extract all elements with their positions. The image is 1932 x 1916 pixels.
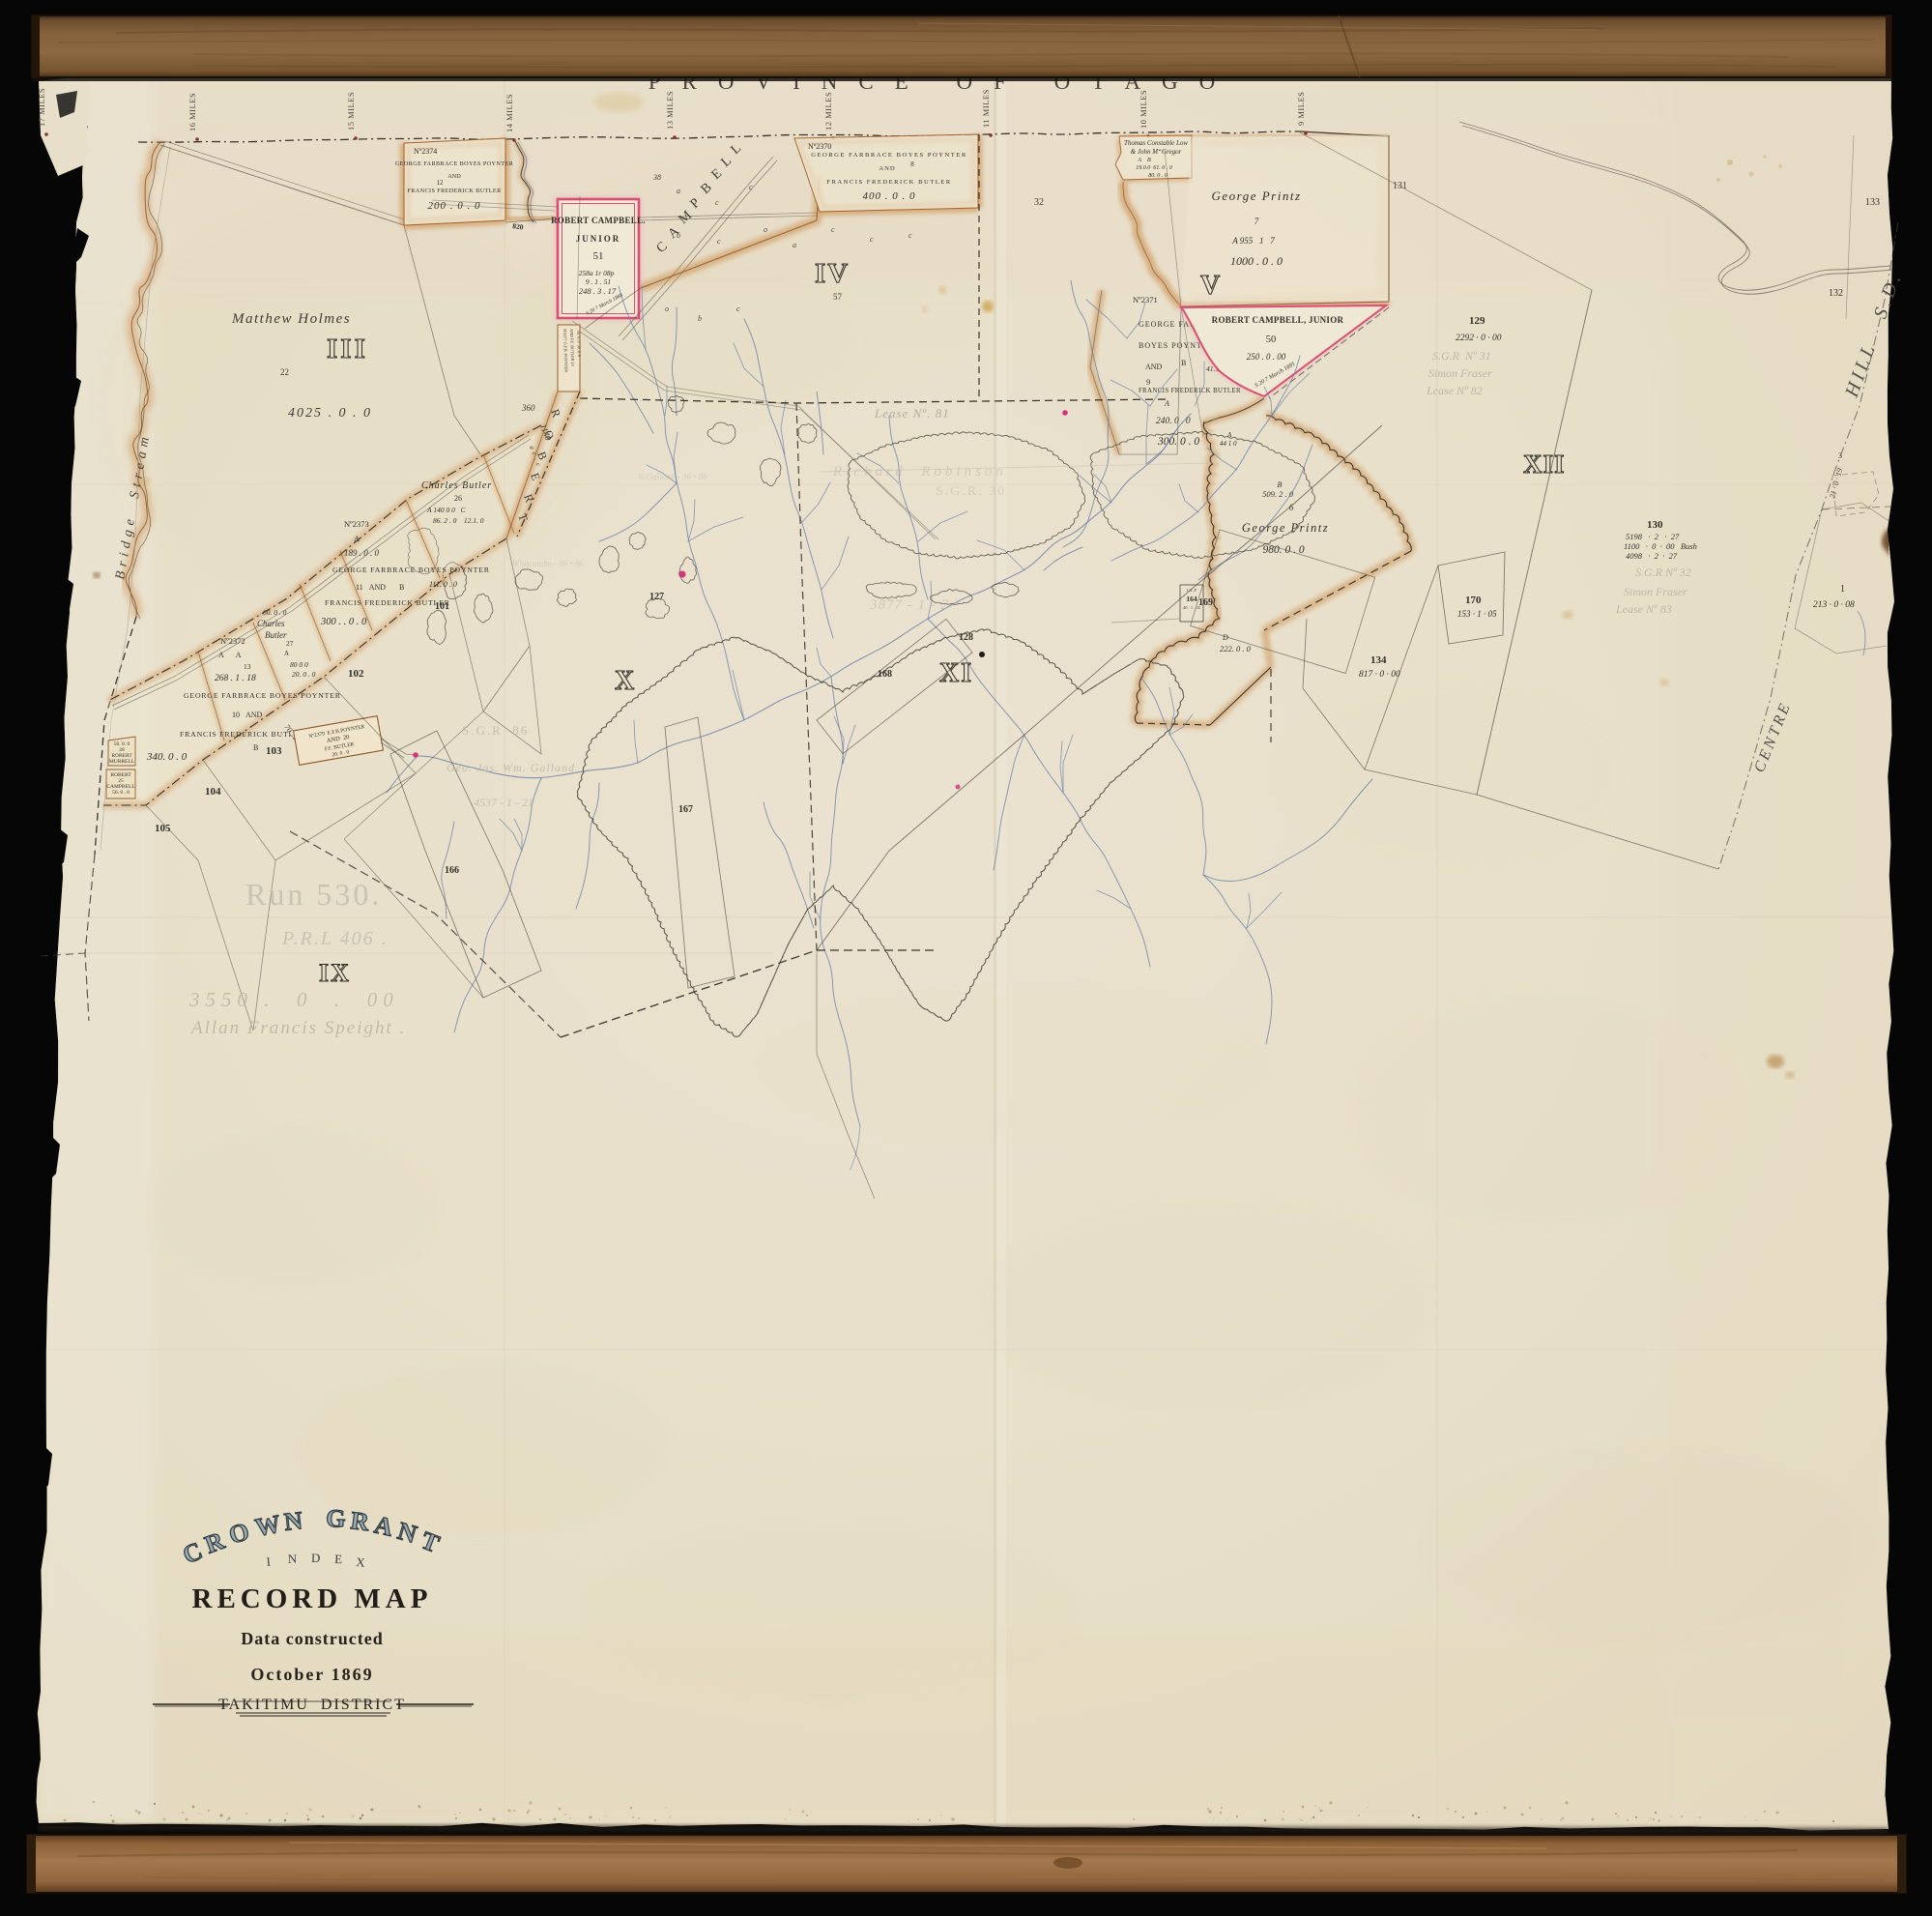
- svg-text:167: 167: [678, 804, 693, 815]
- svg-text:Nº2372: Nº2372: [220, 636, 245, 646]
- svg-text:S.G.R. 30: S.G.R. 30: [936, 484, 1006, 499]
- svg-text:103: 103: [266, 745, 282, 757]
- svg-text:80. 0 . 0: 80. 0 . 0: [1148, 173, 1168, 179]
- svg-text:Lease Nº 83: Lease Nº 83: [1615, 602, 1672, 616]
- svg-text:c: c: [908, 231, 912, 240]
- svg-text:c: c: [736, 305, 740, 313]
- svg-text:250 . 0 . 00: 250 . 0 . 00: [1247, 352, 1286, 362]
- svg-text:134: 134: [1370, 654, 1387, 666]
- svg-text:B: B: [1278, 480, 1283, 489]
- svg-text:R: R: [349, 1506, 370, 1536]
- svg-text:360: 360: [521, 403, 535, 413]
- svg-text:10 MILES: 10 MILES: [1139, 90, 1148, 129]
- svg-text:3550 . 0 . 00: 3550 . 0 . 00: [188, 988, 399, 1011]
- svg-text:D: D: [311, 1551, 320, 1565]
- svg-text:400 . 0 . 0: 400 . 0 . 0: [863, 190, 916, 202]
- svg-text:Run 530.: Run 530.: [245, 877, 382, 912]
- svg-text:8: 8: [910, 160, 914, 168]
- svg-text:c: c: [870, 235, 874, 244]
- svg-text:N: N: [287, 1552, 298, 1566]
- svg-text:16 MILES: 16 MILES: [187, 93, 197, 131]
- svg-text:15 MILES: 15 MILES: [346, 92, 356, 131]
- svg-text:MURRELL: MURRELL: [109, 759, 135, 765]
- svg-text:13 MILES: 13 MILES: [665, 91, 675, 130]
- svg-text:A: A: [1164, 399, 1169, 408]
- svg-text:X: X: [615, 666, 634, 696]
- svg-text:60. 0 . 0: 60. 0 . 0: [263, 608, 287, 617]
- svg-text:RECORD MAP: RECORD MAP: [192, 1583, 433, 1614]
- svg-text:57: 57: [833, 292, 843, 302]
- svg-text:o: o: [677, 231, 680, 240]
- svg-text:V: V: [1200, 271, 1221, 301]
- svg-text:1100 · 0 · 00 Bush: 1100 · 0 · 00 Bush: [1624, 541, 1697, 551]
- svg-text:20. 0 . 0: 20. 0 . 0: [292, 670, 316, 679]
- svg-text:W.Galland - 36 • 86: W.Galland - 36 • 86: [638, 472, 707, 481]
- svg-text:300 . . 0 . 0: 300 . . 0 . 0: [320, 617, 367, 627]
- svg-text:c: c: [717, 237, 721, 246]
- svg-text:44 1 0: 44 1 0: [1220, 440, 1237, 448]
- svg-text:JUNIOR: JUNIOR: [576, 234, 621, 244]
- svg-text:G: G: [326, 1504, 346, 1533]
- svg-text:A A: A A: [218, 651, 242, 659]
- svg-text:102: 102: [348, 668, 364, 680]
- svg-text:133: 133: [1865, 197, 1880, 208]
- svg-text:300. 0 . 0: 300. 0 . 0: [1157, 436, 1199, 448]
- svg-text:340. 0 . 0: 340. 0 . 0: [146, 751, 187, 763]
- svg-text:12 MILES: 12 MILES: [823, 92, 833, 131]
- svg-text:170: 170: [1465, 595, 1482, 606]
- svg-text:7: 7: [1254, 217, 1259, 226]
- svg-text:IX: IX: [319, 959, 351, 987]
- svg-text:AND: AND: [447, 173, 461, 180]
- svg-text:W: W: [253, 1509, 283, 1541]
- svg-text:S.G.R Nº 32: S.G.R Nº 32: [1635, 566, 1691, 579]
- svg-text:P.R.L 406 .: P.R.L 406 .: [281, 928, 389, 949]
- svg-text:b: b: [698, 314, 702, 323]
- svg-text:Nº2370: Nº2370: [808, 142, 831, 151]
- svg-text:50: 50: [1266, 334, 1277, 345]
- svg-text:213 · 0 · 08: 213 · 0 · 08: [1813, 600, 1855, 610]
- svg-text:A: A: [284, 650, 289, 657]
- svg-text:A B: A B: [1137, 158, 1151, 163]
- svg-text:1000 . 0 . 0: 1000 . 0 . 0: [1230, 254, 1283, 268]
- svg-text:Lease Nº 82: Lease Nº 82: [1426, 384, 1483, 397]
- svg-text:132: 132: [1829, 288, 1843, 299]
- svg-text:50. 0. 0 30. 0. 0: 50. 0. 0 30. 0. 0: [576, 331, 582, 357]
- svg-text:Lease Nº. 81: Lease Nº. 81: [874, 406, 950, 421]
- svg-text:FRANCIS FREDERICK BUTLER: FRANCIS FREDERICK BUTLER: [1139, 388, 1241, 394]
- svg-text:GEORGE FARBRACE BOYES POYNT: GEORGE FARBRACE BOYES POYNTER: [811, 152, 967, 159]
- svg-text:XI: XI: [939, 658, 973, 688]
- svg-text:A 955 1 7: A 955 1 7: [1231, 236, 1275, 246]
- svg-text:240. 0 . 0: 240. 0 . 0: [1156, 417, 1191, 426]
- svg-text:164: 164: [1186, 595, 1197, 603]
- svg-text:B: B: [253, 743, 258, 752]
- svg-text:258a 1r 08p: 258a 1r 08p: [579, 269, 615, 277]
- svg-text:51: 51: [593, 250, 604, 262]
- svg-text:FRANCIS FREDERICK BUTLER: FRANCIS FREDERICK BUTLER: [407, 188, 502, 194]
- svg-text:Whitcombe - 36 • 86: Whitcombe - 36 • 86: [512, 559, 584, 568]
- svg-text:GEORGE FARBRACE BOYES POYNTER: GEORGE FARBRACE BOYES POYNTER: [395, 160, 514, 167]
- svg-text:5198 · 2 · 27: 5198 · 2 · 27: [1626, 532, 1680, 541]
- svg-text:22: 22: [280, 367, 289, 377]
- svg-text:189 . 0 . 0: 189 . 0 . 0: [344, 548, 380, 558]
- svg-text:XII: XII: [1523, 450, 1566, 479]
- svg-text:S.G.R Nº 31: S.G.R Nº 31: [1432, 349, 1491, 363]
- svg-text:12: 12: [437, 179, 445, 187]
- svg-text:Charles: Charles: [257, 619, 285, 628]
- svg-text:A: A: [354, 534, 360, 543]
- svg-text:o: o: [665, 305, 669, 313]
- svg-text:166: 166: [445, 865, 459, 876]
- svg-text:A 140 0 0 C: A 140 0 0 C: [426, 506, 466, 514]
- svg-text:9: 9: [1146, 377, 1150, 387]
- svg-text:248 . 3 . 17: 248 . 3 . 17: [579, 286, 617, 296]
- svg-text:4025 . 0 . 0: 4025 . 0 . 0: [288, 406, 372, 421]
- svg-text:AND: AND: [1145, 363, 1163, 371]
- svg-text:E: E: [334, 1552, 343, 1566]
- svg-text:N: N: [283, 1506, 304, 1536]
- svg-text:3: 3: [1838, 451, 1842, 460]
- svg-text:S.G.R 86: S.G.R 86: [462, 723, 529, 738]
- svg-text:c: c: [749, 183, 753, 191]
- svg-text:c: c: [715, 198, 719, 207]
- svg-text:IV: IV: [815, 258, 850, 289]
- svg-text:129: 129: [1469, 315, 1485, 327]
- svg-text:817 · 0 · 00: 817 · 0 · 00: [1359, 670, 1400, 680]
- svg-text:October 1869: October 1869: [250, 1665, 373, 1684]
- svg-text:105: 105: [155, 823, 171, 834]
- svg-text:Simon Fraser: Simon Fraser: [1428, 366, 1492, 380]
- svg-text:Allan Francis Speight .: Allan Francis Speight .: [189, 1018, 406, 1038]
- svg-text:Richard Robinson: Richard Robinson: [832, 464, 1007, 479]
- svg-text:4098 · 2 · 27: 4098 · 2 · 27: [1626, 551, 1678, 561]
- svg-text:128: 128: [959, 632, 973, 643]
- svg-text:127: 127: [649, 592, 664, 602]
- svg-text:2292 · 0 · 00: 2292 · 0 · 00: [1456, 334, 1502, 343]
- svg-text:27: 27: [286, 639, 294, 648]
- svg-text:268 . 1 . 18: 268 . 1 . 18: [215, 674, 256, 683]
- svg-text:3877 - 1 - 2: 3877 - 1 - 2: [869, 597, 949, 613]
- svg-text:ROBERT CAMPBELL, JUNIOR: ROBERT CAMPBELL, JUNIOR: [1212, 315, 1344, 325]
- svg-text:104: 104: [205, 786, 221, 798]
- svg-text:a: a: [677, 187, 680, 195]
- svg-text:38: 38: [652, 173, 661, 182]
- svg-text:9 MILES: 9 MILES: [1296, 92, 1306, 126]
- svg-text:AND: AND: [879, 165, 895, 172]
- svg-text:Butler: Butler: [265, 630, 287, 640]
- svg-text:GEORGE FARBRACE BOYES POYNTER: GEORGE FARBRACE BOYES POYNTER: [184, 691, 341, 700]
- svg-text:GEORGE FARBRACE BOYES POYNTER: GEORGE FARBRACE BOYES POYNTER: [332, 566, 490, 574]
- svg-text:& John M“Gregor: & John M“Gregor: [1131, 148, 1182, 156]
- svg-text:c: c: [831, 225, 835, 234]
- svg-text:Charles Butler: Charles Butler: [421, 480, 492, 491]
- svg-text:FRANCIS FREDERICK BUTLER: FRANCIS FREDERICK BUTLER: [826, 179, 951, 186]
- svg-text:10 AND: 10 AND: [232, 711, 263, 719]
- svg-text:Data constructed: Data constructed: [241, 1629, 383, 1648]
- svg-text:14 MILES: 14 MILES: [505, 94, 514, 132]
- svg-text:130: 130: [1647, 519, 1663, 531]
- svg-text:169: 169: [1198, 597, 1213, 608]
- svg-text:4537 - 1 - 21: 4537 - 1 - 21: [474, 796, 533, 809]
- svg-text:FRANCIS FREDERICK BUTLER: FRANCIS FREDERICK BUTLER: [325, 598, 450, 607]
- svg-text:9 . 1 . 51: 9 . 1 . 51: [586, 277, 611, 286]
- svg-text:13: 13: [244, 662, 251, 671]
- svg-text:26: 26: [454, 494, 462, 503]
- svg-text:222. 0 . 0: 222. 0 . 0: [1220, 644, 1252, 653]
- svg-text:11 MILES: 11 MILES: [981, 89, 991, 128]
- svg-text:86. 2 . 0 12.1. 0: 86. 2 . 0 12.1. 0: [433, 516, 484, 525]
- svg-text:Nº2374: Nº2374: [414, 147, 437, 156]
- svg-text:101: 101: [435, 601, 449, 612]
- svg-text:TAKITIMU DISTRICT: TAKITIMU DISTRICT: [218, 1697, 406, 1713]
- svg-text:820: 820: [512, 221, 525, 232]
- svg-text:80 0 0: 80 0 0: [290, 660, 308, 669]
- svg-text:ROBERT CAMPBELL.: ROBERT CAMPBELL.: [551, 216, 646, 225]
- svg-text:32: 32: [1034, 197, 1044, 208]
- svg-text:Thomas Constable Low: Thomas Constable Low: [1124, 139, 1188, 147]
- svg-text:Nº2373: Nº2373: [344, 519, 369, 529]
- svg-text:B: B: [1181, 359, 1186, 367]
- svg-text:1: 1: [1840, 584, 1845, 595]
- svg-text:a: a: [793, 241, 796, 249]
- svg-text:Geo. Jas. Wm. Galland: Geo. Jas. Wm. Galland: [447, 761, 575, 774]
- svg-text:George Printz: George Printz: [1211, 189, 1301, 203]
- svg-text:17 MILES: 17 MILES: [37, 88, 46, 127]
- svg-text:56. 0 . 0: 56. 0 . 0: [112, 790, 130, 796]
- svg-text:o: o: [764, 225, 767, 234]
- svg-text:Simon Fraser: Simon Fraser: [1624, 585, 1687, 598]
- svg-text:Matthew Holmes: Matthew Holmes: [231, 311, 351, 327]
- svg-text:III: III: [327, 334, 368, 364]
- svg-text:153 · 1 · 05: 153 · 1 · 05: [1457, 609, 1497, 619]
- svg-text:11 AND B: 11 AND B: [356, 583, 404, 592]
- svg-text:George Printz: George Printz: [1242, 521, 1329, 535]
- svg-text:168: 168: [878, 669, 892, 680]
